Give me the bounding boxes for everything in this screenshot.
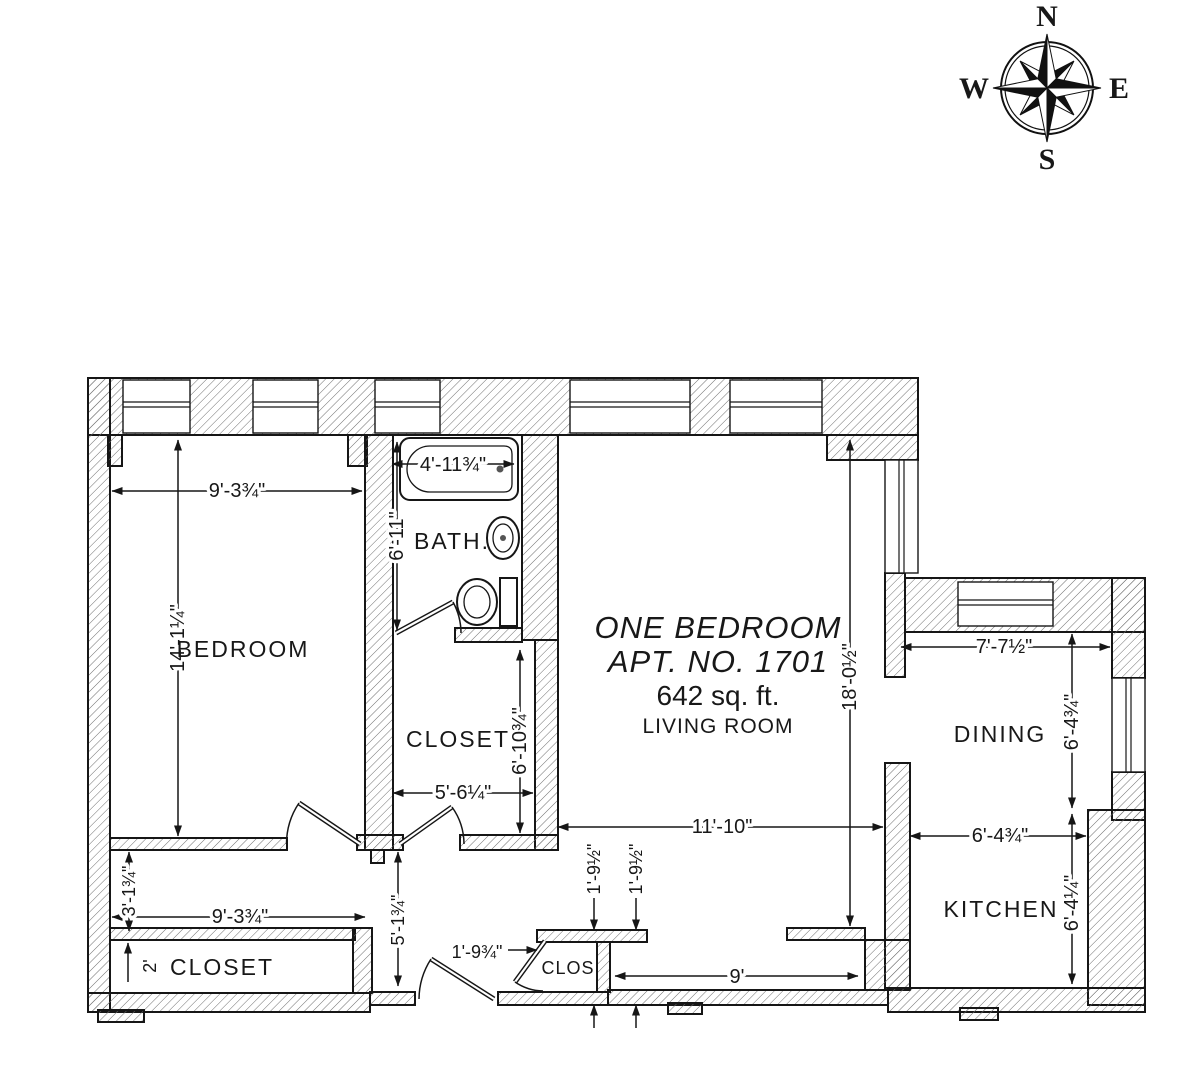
window (885, 460, 918, 573)
foyer-hall-width-dim: 9' (730, 966, 745, 988)
compass-east-label: E (1109, 72, 1129, 105)
sink (487, 517, 519, 559)
window (730, 380, 822, 433)
windows (123, 380, 1145, 772)
living-height-dim: 18'-0½" (839, 643, 861, 711)
hall-width-dim: 9'-3¾" (212, 906, 269, 928)
compass-south-label: S (1039, 143, 1056, 176)
closet-mid-label: CLOSET (406, 726, 510, 752)
closet-mid-width-dim: 5'-6¼" (435, 782, 492, 804)
bedroom-door (287, 803, 361, 844)
kitchen-label: KITCHEN (944, 896, 1059, 922)
dining-height-dim: 6'-4¾" (1061, 694, 1083, 751)
closet-bottom-label: CLOSET (170, 954, 274, 980)
window (123, 380, 190, 433)
floorplan-page: 9'-3¾" 14'-1¼" 4'-11¾" 6'-11" 5'-6¼" 6'-… (0, 0, 1186, 1080)
closet-door (400, 807, 464, 844)
entry-door-dim: 1'-9¾" (452, 942, 503, 962)
title-line1: ONE BEDROOM (595, 610, 842, 645)
floor-plan: 9'-3¾" 14'-1¼" 4'-11¾" 6'-11" 5'-6¼" 6'-… (0, 0, 1186, 1080)
closet-mid-height-dim: 6'-10¾" (509, 707, 531, 775)
bath-door (396, 602, 461, 633)
window (958, 582, 1053, 626)
vestibule-height-dim: 5'-1¾" (388, 895, 408, 946)
bedroom-width-dim: 9'-3¾" (209, 480, 266, 502)
toilet (457, 578, 517, 626)
closet-entry-label: CLOS. (541, 958, 600, 978)
compass-rose: N E S W (959, 0, 1129, 176)
living-width-dim: 11'-10" (692, 816, 753, 838)
entry-closet-dim-2: 1'-9½" (626, 844, 646, 895)
bath-label: BATH. (414, 528, 490, 554)
compass-north-label: N (1036, 0, 1058, 33)
bath-height-dim: 6'-11" (386, 511, 408, 560)
window (253, 380, 318, 433)
dining-label: DINING (954, 721, 1047, 747)
entry-door (419, 959, 494, 999)
title-line3: 642 sq. ft. (657, 680, 780, 711)
title-block: ONE BEDROOM APT. NO. 1701 642 sq. ft. LI… (595, 610, 842, 738)
entry-closet-dim-1: 1'-9½" (584, 844, 604, 895)
closet-bottom-depth-dim: 2' (140, 959, 160, 972)
hall-height-dim: 3'-1¾" (119, 866, 139, 917)
tub-width-dim: 4'-11¾" (420, 454, 486, 476)
window (1112, 678, 1145, 772)
kitchen-width-dim: 6'-4¾" (972, 825, 1029, 847)
window (375, 380, 440, 433)
kitchen-height-dim: 6'-4¼" (1061, 875, 1083, 932)
bedroom-label: BEDROOM (177, 636, 310, 662)
dining-width-dim: 7'-7½" (976, 636, 1033, 658)
title-line2: APT. NO. 1701 (606, 644, 828, 679)
window (570, 380, 690, 433)
compass-west-label: W (959, 72, 989, 105)
title-line4: LIVING ROOM (642, 715, 793, 738)
